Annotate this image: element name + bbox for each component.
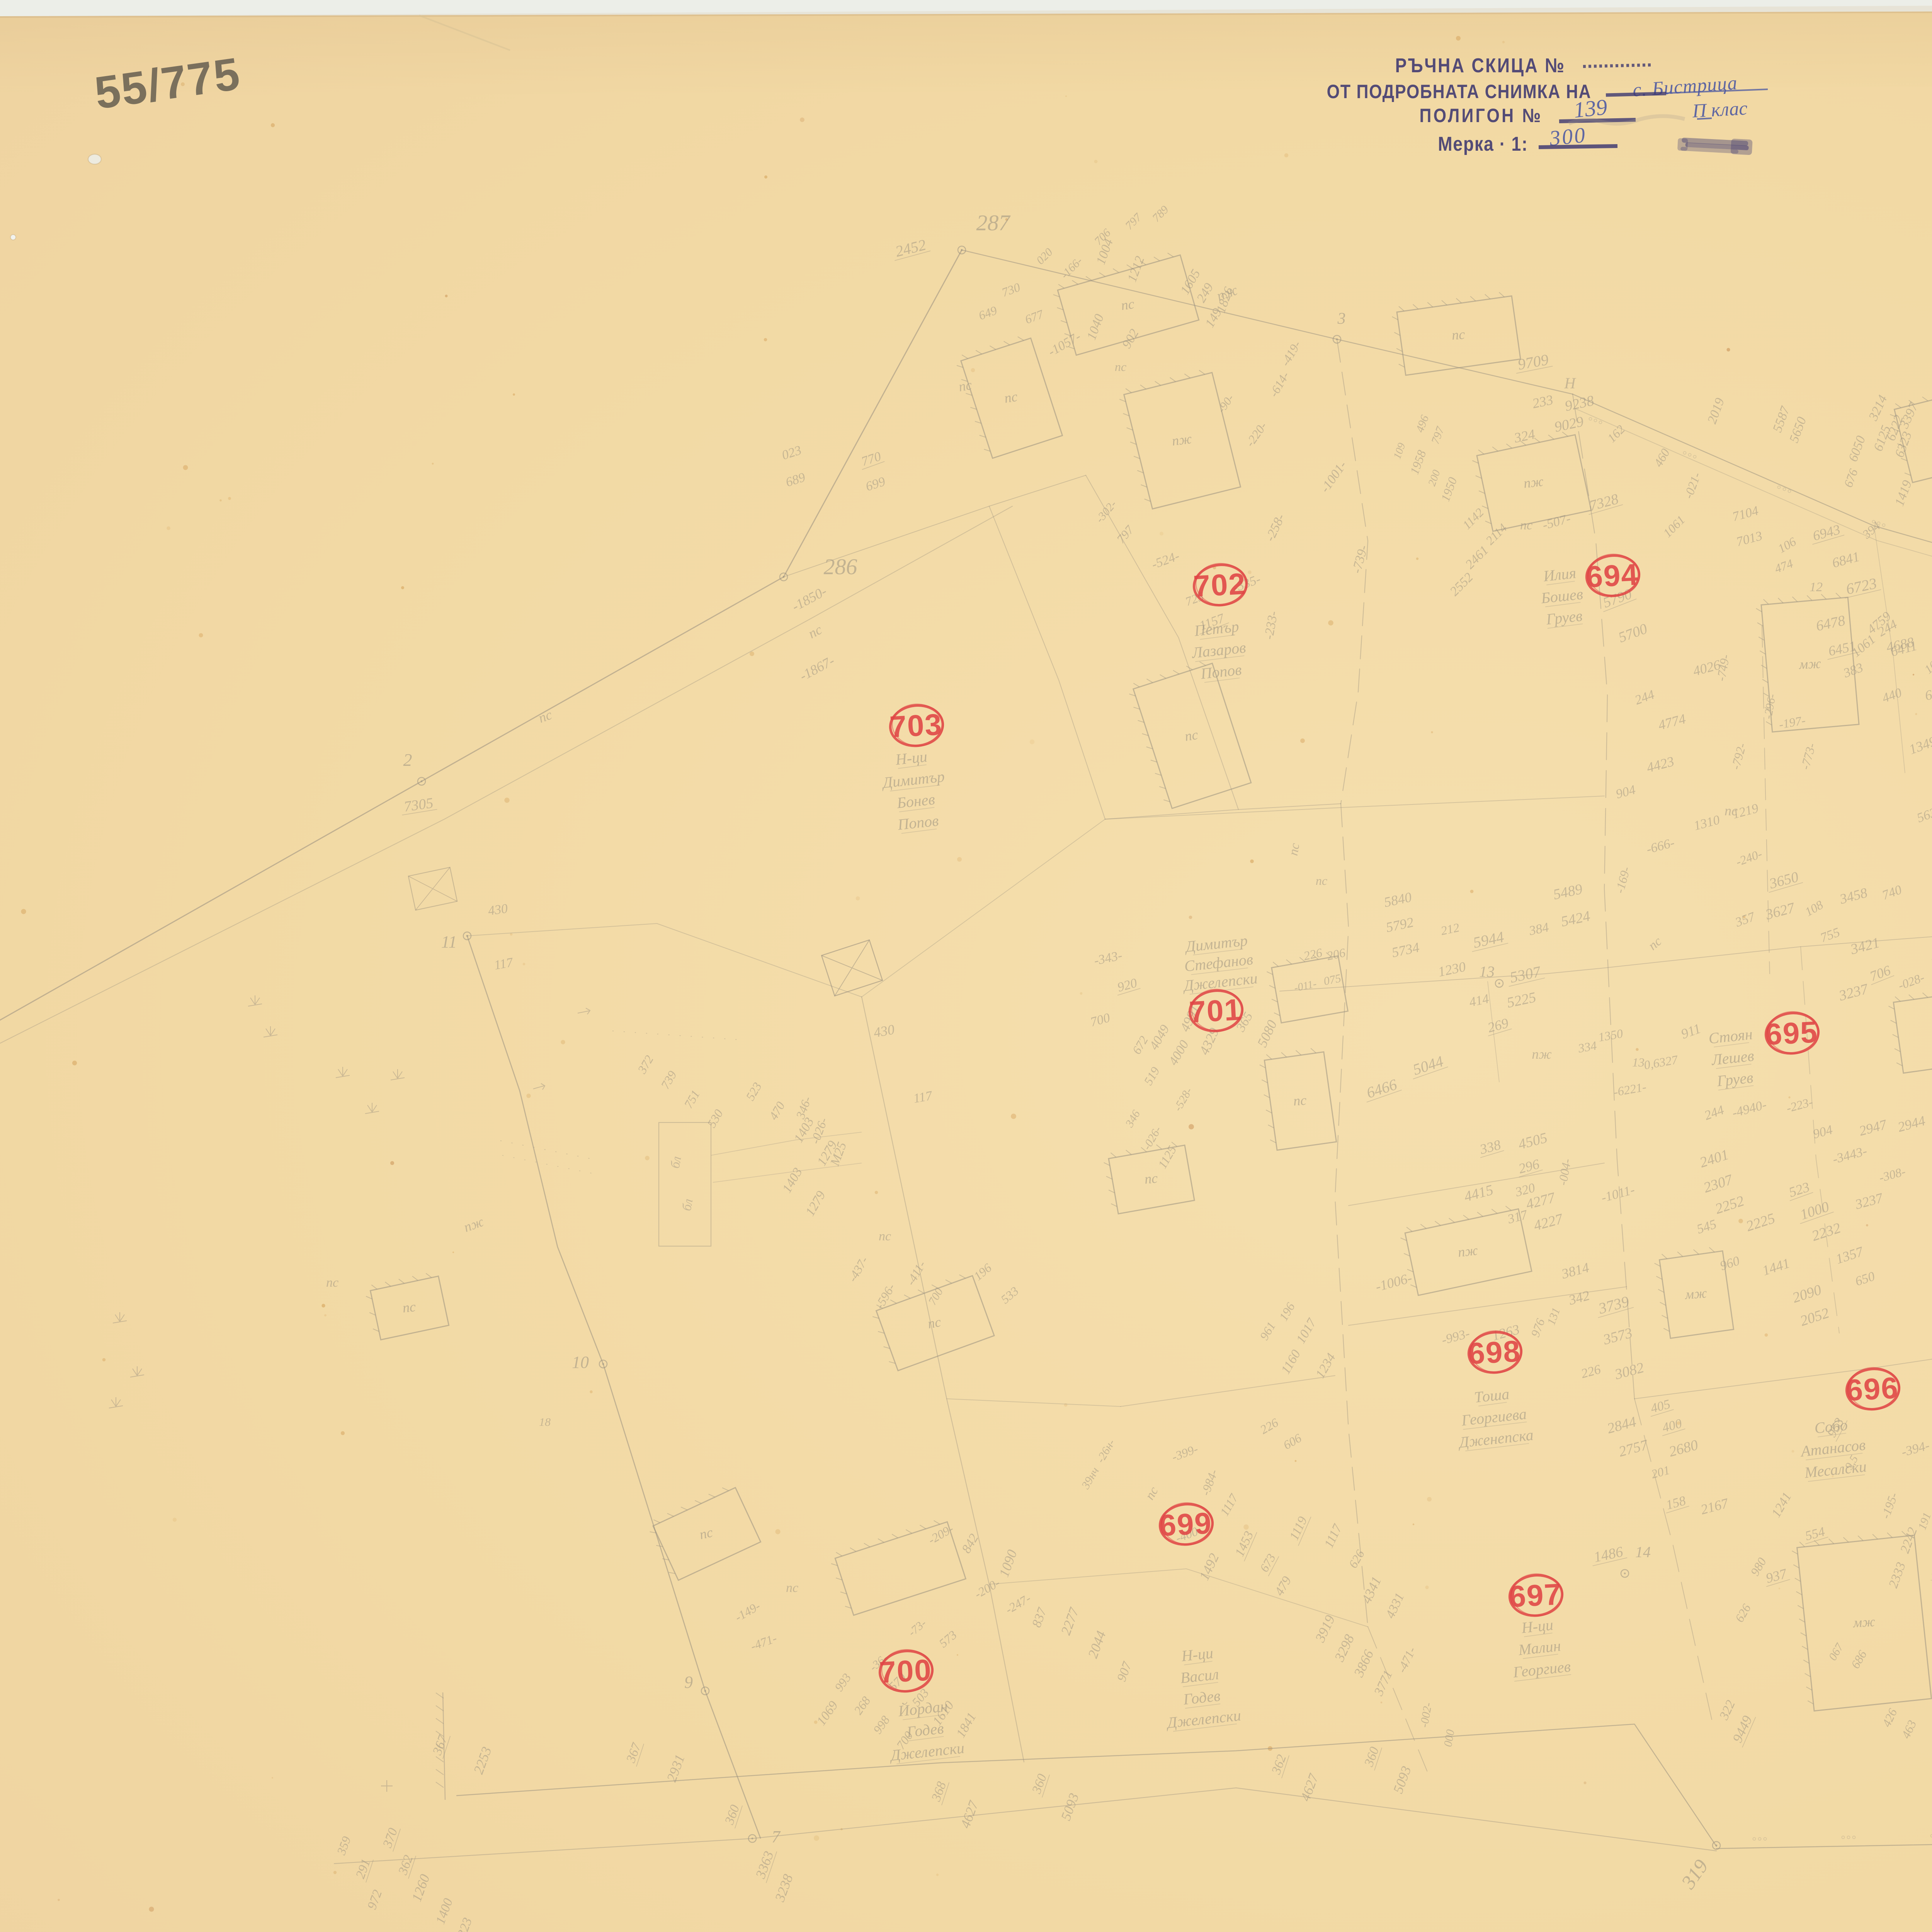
svg-text:пс: пс — [927, 1314, 942, 1332]
svg-text:мж: мж — [1852, 1614, 1875, 1631]
svg-text:пс: пс — [1184, 727, 1199, 744]
svg-text:694: 694 — [1585, 557, 1639, 594]
svg-text:287: 287 — [976, 210, 1011, 235]
svg-text:бл: бл — [668, 1155, 684, 1170]
svg-text:пж: пж — [1171, 431, 1193, 449]
svg-text:пс: пс — [1293, 1092, 1307, 1109]
svg-text:пс: пс — [1115, 360, 1126, 374]
svg-text:пж: пж — [1523, 473, 1544, 491]
svg-text:11: 11 — [441, 932, 457, 951]
svg-text:мж: мж — [1684, 1285, 1708, 1302]
svg-text:702: 702 — [1192, 566, 1247, 603]
svg-text:бл: бл — [680, 1198, 696, 1212]
svg-text:695: 695 — [1764, 1015, 1819, 1051]
svg-text:700: 700 — [878, 1653, 933, 1689]
svg-text:696: 696 — [1845, 1371, 1900, 1407]
svg-text:7: 7 — [772, 1827, 781, 1846]
svg-text:Н: Н — [1564, 374, 1577, 392]
svg-text:пс: пс — [402, 1299, 417, 1315]
svg-text:430: 430 — [487, 901, 509, 918]
svg-text:пс: пс — [957, 377, 973, 395]
svg-text:703: 703 — [889, 707, 943, 744]
svg-text:РЪЧНА СКИЦА №: РЪЧНА СКИЦА № — [1395, 54, 1566, 77]
svg-text:пс: пс — [1120, 296, 1135, 313]
svg-text:13: 13 — [1632, 1055, 1645, 1069]
svg-text:699: 699 — [1158, 1506, 1213, 1543]
svg-text:пж: пж — [1457, 1242, 1478, 1260]
svg-text:пс: пс — [879, 1229, 891, 1243]
svg-text:пс: пс — [1144, 1170, 1158, 1187]
svg-text:698: 698 — [1467, 1334, 1522, 1371]
svg-text:П клас: П клас — [1691, 97, 1748, 121]
svg-text:пс: пс — [786, 1581, 798, 1595]
svg-text:пс: пс — [1316, 874, 1327, 888]
svg-text:пс: пс — [1451, 327, 1466, 343]
svg-text:ОТ ПОДРОБНАТА СНИМКА НА: ОТ ПОДРОБНАТА СНИМКА НА — [1327, 81, 1592, 102]
svg-text:9: 9 — [684, 1673, 693, 1692]
svg-text:12: 12 — [1930, 1570, 1932, 1583]
svg-text:12: 12 — [1810, 580, 1823, 594]
svg-text:пс: пс — [1003, 389, 1019, 406]
svg-text:3: 3 — [1337, 310, 1346, 328]
svg-text:697: 697 — [1508, 1577, 1563, 1614]
svg-text:13: 13 — [1479, 963, 1495, 980]
svg-text:пс: пс — [1286, 842, 1303, 857]
svg-text:14: 14 — [1635, 1543, 1651, 1561]
svg-text:пс: пс — [326, 1276, 338, 1290]
svg-text:пж: пж — [1532, 1046, 1552, 1062]
svg-text:2: 2 — [403, 750, 412, 770]
svg-text:286: 286 — [824, 554, 857, 579]
svg-text:ПОЛИГОН №: ПОЛИГОН № — [1420, 105, 1543, 126]
svg-text:10: 10 — [572, 1353, 589, 1372]
svg-text:701: 701 — [1188, 992, 1243, 1029]
svg-text:18: 18 — [539, 1416, 551, 1429]
svg-text:Мерка · 1:: Мерка · 1: — [1438, 133, 1528, 155]
svg-text:мж: мж — [1798, 656, 1821, 672]
svg-text:пс: пс — [1520, 518, 1532, 532]
